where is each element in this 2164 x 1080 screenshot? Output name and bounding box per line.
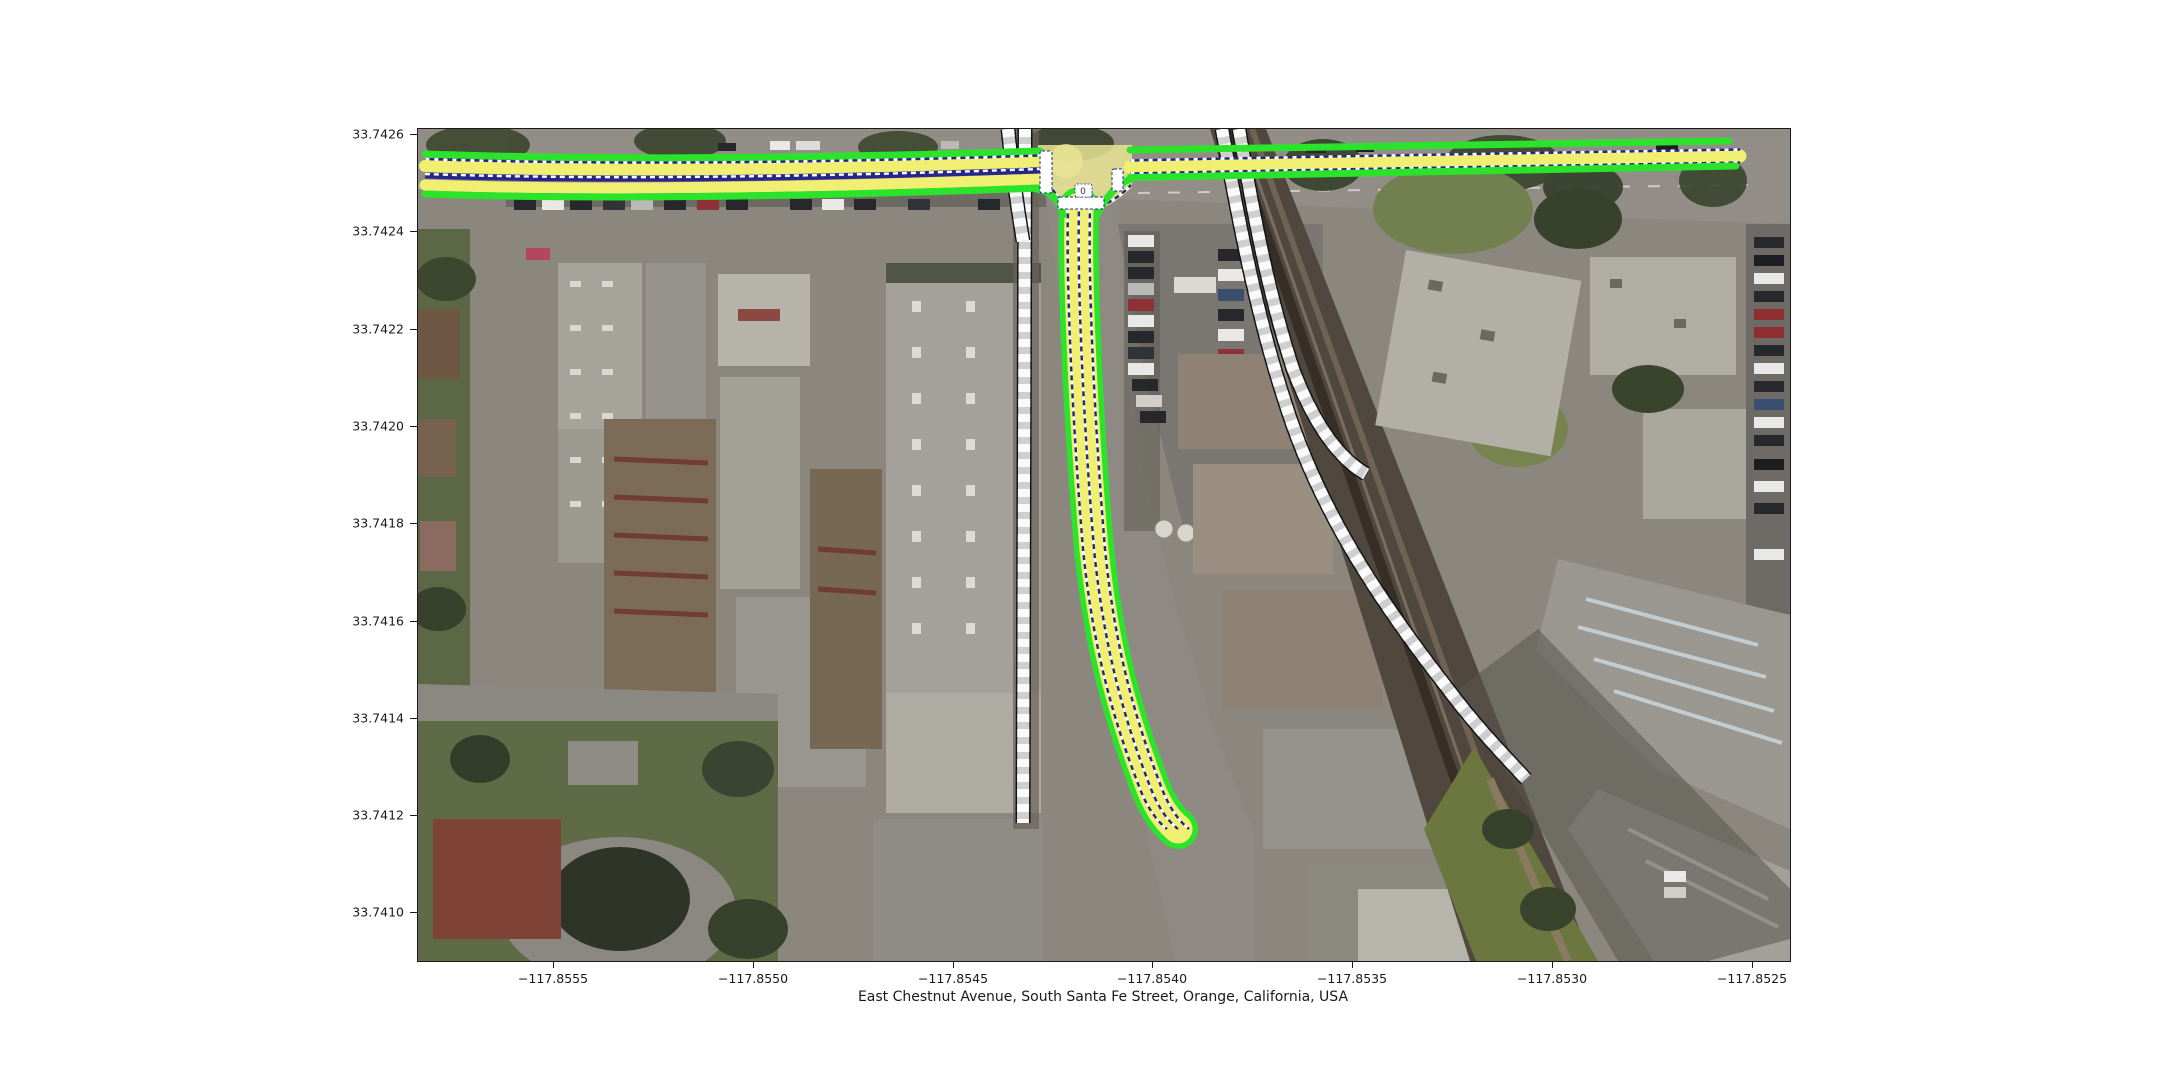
map-location-label: East Chestnut Avenue, South Santa Fe Str…: [858, 989, 1348, 1005]
x-tick-mark: [753, 961, 754, 968]
stop-line-south: [1058, 197, 1104, 209]
house-roof: [418, 419, 456, 477]
svg-text:0: 0: [1080, 187, 1086, 197]
figure-canvas: 0 33.7426 33.7424 33.7422 33.7420 33.741…: [0, 0, 2164, 1080]
y-tick-label: 33.7416: [334, 614, 404, 629]
building-roof: [1223, 589, 1383, 709]
building-roof: [720, 377, 800, 589]
y-tick-mark: [410, 621, 417, 622]
y-tick-mark: [410, 912, 417, 913]
y-tick-label: 33.7414: [334, 711, 404, 726]
bottom-left-residential: [418, 684, 788, 961]
red-car: [526, 248, 550, 260]
x-tick-mark: [553, 961, 554, 968]
rv-roof: [1174, 277, 1216, 293]
x-tick-label: −117.8535: [1317, 971, 1387, 986]
y-tick-label: 33.7420: [334, 419, 404, 434]
y-tick-mark: [410, 815, 417, 816]
y-tick-label: 33.7426: [334, 127, 404, 142]
y-tick-mark: [410, 231, 417, 232]
aerial-map: 0: [418, 129, 1790, 961]
traffic-sign-icon: 0: [1075, 184, 1092, 197]
map-plot-area: 0: [417, 128, 1791, 962]
house-roof: [420, 521, 456, 571]
x-tick-label: −117.8550: [718, 971, 788, 986]
y-tick-mark: [410, 523, 417, 524]
y-tick-mark: [410, 426, 417, 427]
x-tick-mark: [1152, 961, 1153, 968]
building-roof: [873, 819, 1043, 961]
y-tick-label: 33.7424: [334, 224, 404, 239]
stop-line-east: [1112, 169, 1123, 191]
building-roof: [1375, 250, 1581, 456]
y-tick-label: 33.7422: [334, 322, 404, 337]
y-tick-label: 33.7412: [334, 808, 404, 823]
y-tick-mark: [410, 329, 417, 330]
y-tick-label: 33.7418: [334, 516, 404, 531]
tree-canopy: [550, 847, 690, 951]
turn-pocket-bulb: [1049, 144, 1083, 178]
x-tick-mark: [1752, 961, 1753, 968]
stop-line-west: [1040, 151, 1052, 193]
x-tick-mark: [953, 961, 954, 968]
x-tick-label: −117.8525: [1717, 971, 1787, 986]
house-roof: [433, 819, 561, 939]
residential-left-strip: [418, 229, 476, 699]
y-tick-mark: [410, 718, 417, 719]
y-tick-label: 33.7410: [334, 905, 404, 920]
x-tick-mark: [1552, 961, 1553, 968]
building-roof: [1590, 257, 1736, 375]
avenue-west-lanes: [425, 151, 1040, 197]
x-tick-label: −117.8555: [518, 971, 588, 986]
y-tick-mark: [410, 134, 417, 135]
x-tick-mark: [1352, 961, 1353, 968]
x-tick-label: −117.8545: [918, 971, 988, 986]
x-tick-label: −117.8530: [1517, 971, 1587, 986]
house-roof: [418, 309, 460, 379]
x-tick-label: −117.8540: [1117, 971, 1187, 986]
